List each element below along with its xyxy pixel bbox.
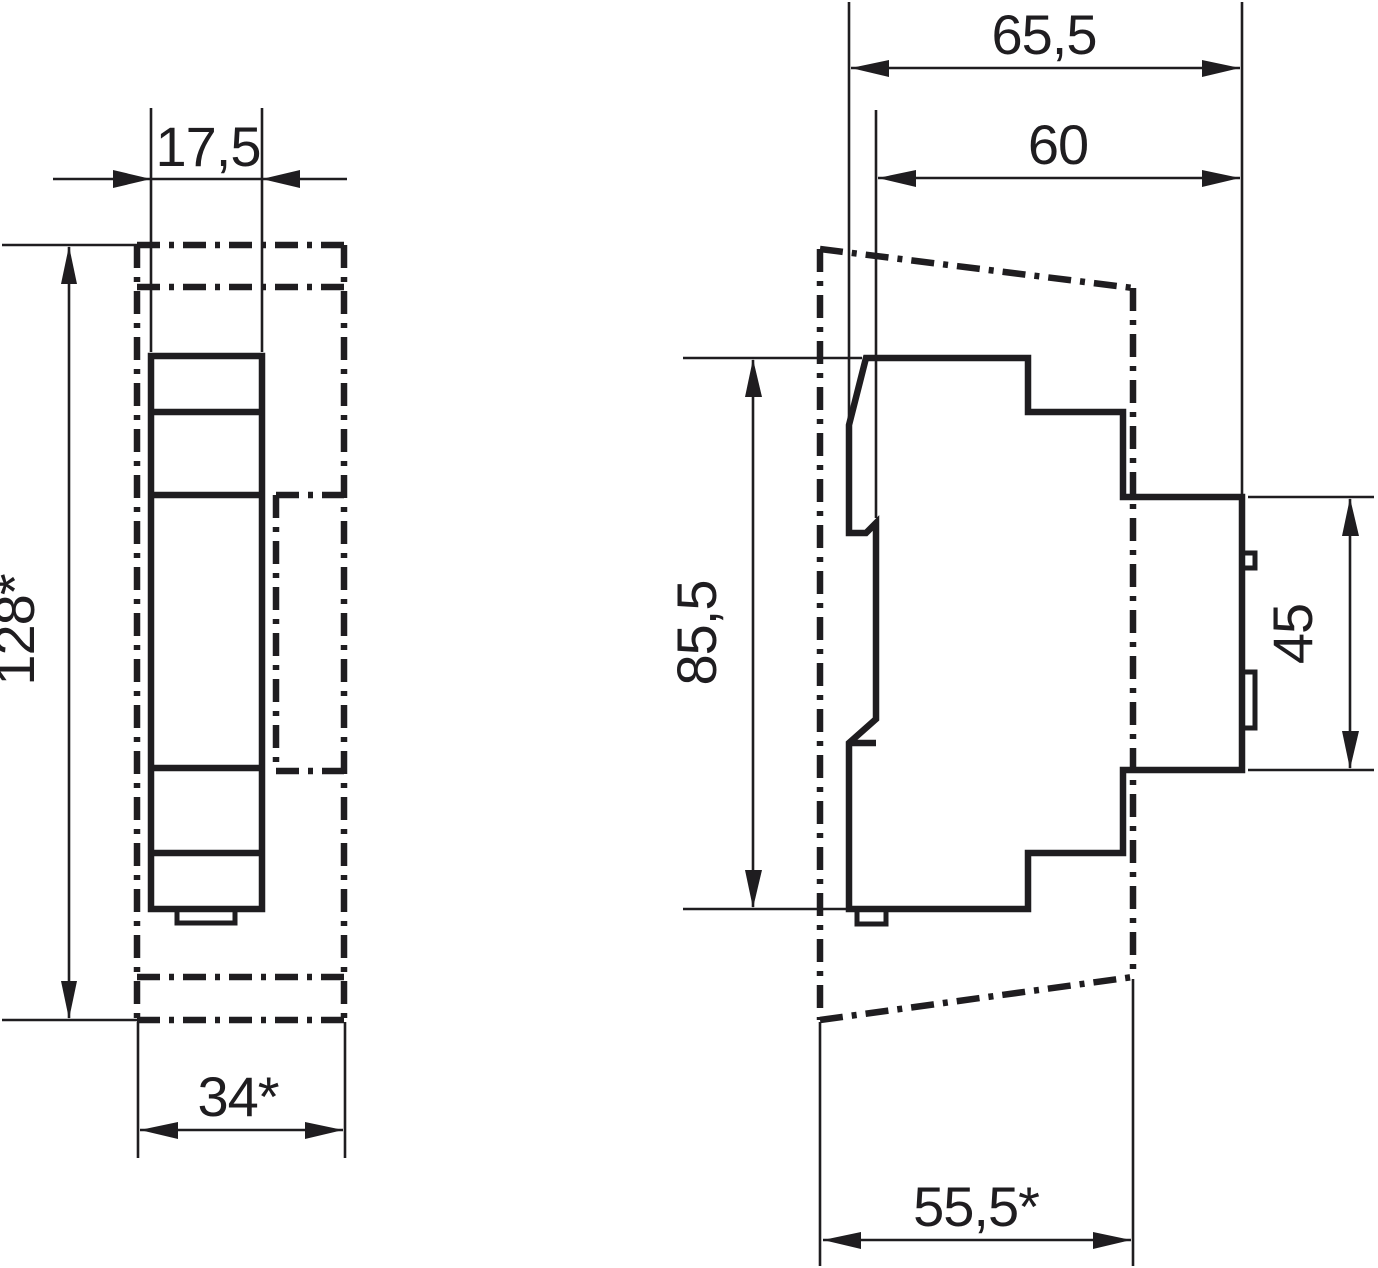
front-view: 17,5 128* 34* [0, 108, 347, 1158]
dim-label-side-front-height: 45 [1261, 604, 1324, 664]
dim-side-body-depth: 60 [876, 110, 1240, 518]
dim-label-side-overall-depth: 65,5 [992, 3, 1097, 66]
dim-label-side-body-depth: 60 [1028, 113, 1088, 176]
side-device-outline [849, 358, 1242, 909]
drawing-canvas: 17,5 128* 34* [0, 0, 1378, 1268]
arrowhead-up [745, 359, 762, 397]
arrowhead-up [61, 246, 77, 284]
arrowhead-right [1202, 60, 1240, 77]
dim-side-front-height: 45 [1248, 497, 1374, 770]
cutout-bottom-edge [820, 977, 1133, 1020]
side-device-body [849, 358, 1255, 924]
arrowhead-up [1342, 498, 1359, 536]
arrowhead-left [262, 170, 300, 188]
arrowhead-down [745, 870, 762, 908]
arrowhead-left [878, 170, 916, 187]
dim-side-cutout-depth: 55,5* [820, 979, 1133, 1266]
front-device-body [151, 356, 262, 923]
dim-side-overall-depth: 65,5 [849, 2, 1242, 494]
technical-drawing: 17,5 128* 34* [0, 0, 1378, 1268]
side-view: 65,5 60 85,5 45 [665, 2, 1374, 1266]
arrowhead-right [1093, 1232, 1131, 1249]
dim-front-width: 17,5 [53, 108, 347, 352]
arrowhead-left [140, 1122, 178, 1139]
arrowhead-left [823, 1232, 861, 1249]
arrowhead-right [1202, 170, 1240, 187]
dim-label-front-width: 17,5 [156, 115, 261, 178]
dim-label-front-height: 128* [0, 574, 46, 685]
front-panel-cutout-outline [137, 245, 344, 1020]
dim-side-body-height: 85,5 [665, 358, 862, 909]
arrowhead-right [305, 1122, 343, 1139]
dim-label-front-cutout-width: 34* [197, 1065, 278, 1128]
dim-label-side-body-height: 85,5 [665, 581, 728, 686]
arrowhead-down [1342, 731, 1359, 769]
arrowhead-down [61, 981, 77, 1019]
front-device-outline [151, 356, 262, 909]
dim-front-cutout-width: 34* [138, 1022, 345, 1158]
dim-front-height: 128* [0, 245, 137, 1020]
cutout-top-edge [820, 249, 1133, 288]
arrowhead-right [113, 170, 151, 188]
dim-label-side-cutout-depth: 55,5* [913, 1175, 1039, 1238]
arrowhead-left [851, 60, 889, 77]
